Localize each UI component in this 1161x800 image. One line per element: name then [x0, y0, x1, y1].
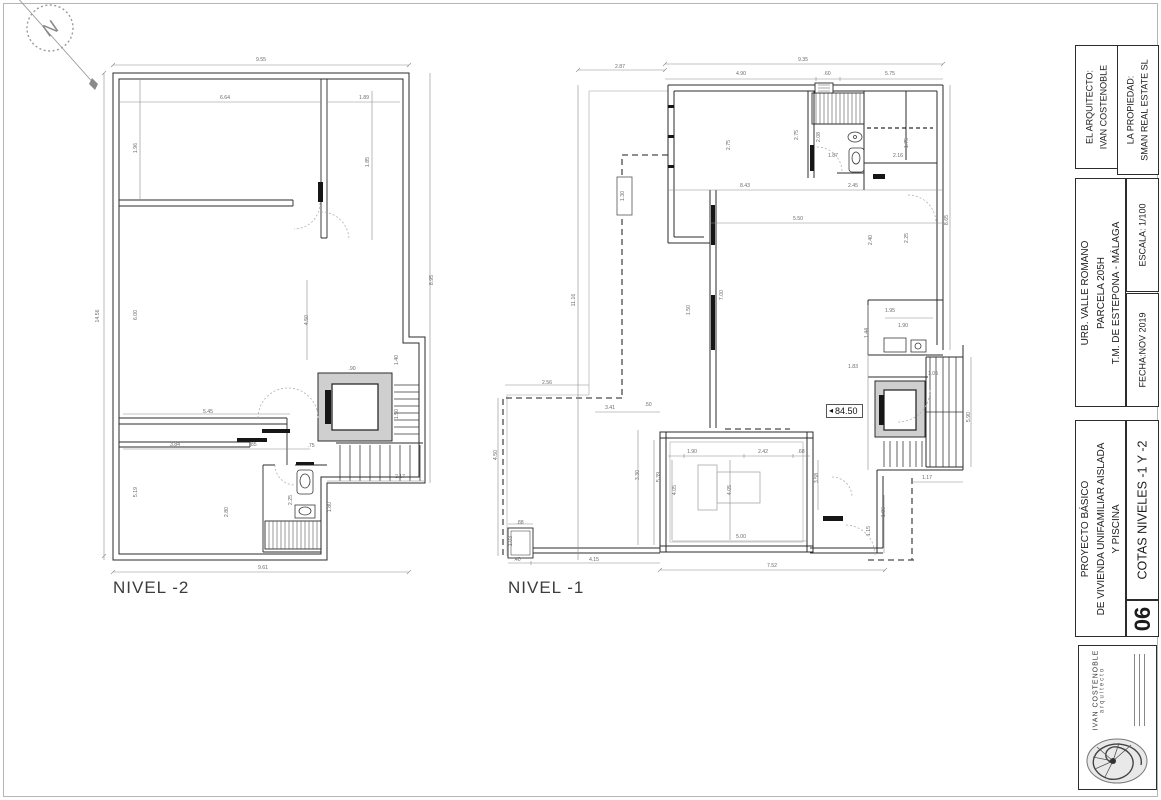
wc-fixtures: [848, 132, 864, 172]
location-line1: URB. VALLE ROMANO: [1077, 181, 1093, 405]
location-line2: PARCELA 205H: [1093, 181, 1109, 405]
scale-value: ESCALA: 1/100: [1136, 180, 1150, 290]
sheet-number-cell: 06: [1126, 600, 1159, 637]
compass-rose-icon: [16, 0, 98, 90]
svg-text:3.41: 3.41: [605, 405, 615, 411]
location-line3: T.M. DE ESTEPONA - MÁLAGA: [1108, 181, 1124, 405]
project-cell: PROYECTO BÁSICO DE VIVIENDA UNIFAMILIAR …: [1075, 420, 1126, 637]
stamp-contact-text: [1134, 654, 1135, 726]
svg-text:5.90: 5.90: [966, 412, 972, 422]
date-cell: FECHA:NOV 2019: [1126, 293, 1159, 407]
architect-cell: EL ARQUITECTO: IVAN COSTENOBLE: [1075, 45, 1118, 169]
title-block: EL ARQUITECTO: IVAN COSTENOBLE LA PROPIE…: [1074, 42, 1160, 795]
utility-fixtures: [884, 338, 926, 352]
svg-text:4.15: 4.15: [589, 557, 599, 563]
svg-text:2.87: 2.87: [615, 64, 625, 70]
project-line1: PROYECTO BÁSICO: [1077, 423, 1093, 635]
owner-label: LA PROPIEDAD:: [1125, 47, 1139, 173]
ramp-hatch: [812, 83, 864, 124]
stamp-name: IVAN COSTENOBLE: [1093, 647, 1100, 733]
svg-text:3.58: 3.58: [814, 473, 820, 483]
location-cell: URB. VALLE ROMANO PARCELA 205H T.M. DE E…: [1075, 178, 1126, 407]
svg-text:1.40: 1.40: [394, 355, 400, 365]
svg-text:4.05: 4.05: [727, 485, 733, 495]
svg-text:1.44: 1.44: [864, 328, 870, 338]
door-arcs: [258, 203, 349, 485]
svg-text:1.90: 1.90: [687, 449, 697, 455]
elevator-shaft: [875, 381, 925, 437]
svg-text:1.85: 1.85: [365, 157, 371, 167]
svg-text:2.56: 2.56: [542, 380, 552, 386]
nautilus-shell-logo: [1079, 735, 1154, 787]
terrace-slab-lines: [507, 91, 668, 556]
svg-text:1.86: 1.86: [881, 507, 887, 517]
svg-text:.90: .90: [348, 366, 355, 372]
svg-text:.85: .85: [249, 442, 256, 448]
svg-text:1.80: 1.80: [327, 502, 333, 512]
svg-text:4.05: 4.05: [672, 485, 678, 495]
svg-text:.60: .60: [823, 71, 830, 77]
sheet-number: 06: [1130, 602, 1156, 636]
svg-text:1.50: 1.50: [394, 409, 400, 419]
plan-nivel-1: [498, 62, 971, 572]
grille-hatch: [265, 521, 321, 549]
svg-text:5.00: 5.00: [736, 534, 746, 540]
svg-text:3.30: 3.30: [635, 470, 641, 480]
svg-text:4.50: 4.50: [493, 450, 499, 460]
svg-text:7.00: 7.00: [719, 290, 725, 300]
svg-text:.40: .40: [513, 557, 520, 563]
level-marker-value: 84.50: [835, 406, 858, 416]
architect-stamp-card: IVAN COSTENOBLE arquitecto: [1078, 645, 1157, 790]
svg-text:5.50: 5.50: [793, 216, 803, 222]
level-marker: ◂ 84.50: [826, 404, 863, 418]
sheet-title-cell: COTAS NIVELES -1 Y -2: [1126, 420, 1159, 600]
svg-text:5.45: 5.45: [203, 409, 213, 415]
plan-title-nivel-2: NIVEL -2: [113, 578, 189, 598]
dimension-lines: [498, 62, 971, 572]
svg-text:4.90: 4.90: [736, 71, 746, 77]
architect-name: IVAN COSTENOBLE: [1097, 47, 1111, 167]
svg-text:.68: .68: [797, 449, 804, 455]
svg-text:6.00: 6.00: [133, 310, 139, 320]
svg-text:9.61: 9.61: [258, 565, 268, 571]
architect-label: EL ARQUITECTO:: [1083, 47, 1097, 167]
sheet-title: COTAS NIVELES -1 Y -2: [1134, 423, 1152, 598]
svg-text:1.75: 1.75: [904, 138, 910, 148]
svg-text:2.80: 2.80: [224, 507, 230, 517]
svg-text:1.06: 1.06: [928, 371, 938, 377]
project-line3: Y PISCINA: [1108, 423, 1124, 635]
svg-text:5.19: 5.19: [133, 487, 139, 497]
floorplan-canvas: 9.556.641.8914.561.961.858.956.004.505.4…: [0, 0, 1161, 800]
level-flag-icon: ◂: [829, 407, 833, 415]
svg-text:2.42: 2.42: [758, 449, 768, 455]
dimension-lines: [102, 63, 430, 574]
stamp-contact-text: [1144, 654, 1145, 726]
svg-text:1.83: 1.83: [848, 364, 858, 370]
svg-text:5.39: 5.39: [656, 472, 662, 482]
stamp-contact-text: [1139, 654, 1140, 726]
owner-name: SMAN REAL ESTATE SL: [1138, 47, 1152, 173]
svg-text:1.17: 1.17: [922, 475, 932, 481]
svg-text:8.65: 8.65: [944, 215, 950, 225]
project-line2: DE VIVIENDA UNIFAMILIAR AISLADA: [1093, 423, 1109, 635]
svg-text:11.16: 11.16: [571, 294, 577, 307]
svg-text:1.87: 1.87: [828, 153, 838, 159]
svg-text:2.75: 2.75: [794, 130, 800, 140]
svg-text:.50: .50: [644, 402, 651, 408]
scale-cell: ESCALA: 1/100: [1126, 178, 1159, 292]
svg-text:2.16: 2.16: [893, 153, 903, 159]
svg-text:2.08: 2.08: [816, 132, 822, 142]
bathroom-fixtures: [295, 470, 315, 518]
owner-cell: LA PROPIEDAD: SMAN REAL ESTATE SL: [1117, 45, 1159, 175]
stamp-role: arquitecto: [1100, 647, 1106, 733]
svg-text:6.64: 6.64: [220, 95, 230, 101]
svg-text:4.50: 4.50: [304, 315, 310, 325]
svg-text:3.84: 3.84: [170, 442, 180, 448]
svg-text:.88: .88: [516, 520, 523, 526]
svg-text:5.75: 5.75: [885, 71, 895, 77]
svg-text:1.15: 1.15: [866, 526, 872, 536]
plan-title-nivel-1: NIVEL -1: [508, 578, 584, 598]
svg-text:2.40: 2.40: [868, 235, 874, 245]
plan-nivel-2: [102, 63, 430, 574]
svg-text:7.52: 7.52: [767, 563, 777, 569]
svg-text:1.50: 1.50: [686, 305, 692, 315]
svg-text:2.17: 2.17: [395, 474, 405, 480]
svg-text:2.45: 2.45: [848, 183, 858, 189]
svg-text:1.95: 1.95: [885, 308, 895, 314]
svg-text:.75: .75: [307, 443, 314, 449]
svg-text:2.75: 2.75: [726, 140, 732, 150]
svg-text:14.56: 14.56: [95, 309, 101, 322]
svg-text:1.30: 1.30: [620, 191, 626, 201]
window-glazing: [668, 105, 885, 521]
svg-text:8.43: 8.43: [740, 183, 750, 189]
drawing-sheet: 9.556.641.8914.561.961.858.956.004.505.4…: [0, 0, 1161, 800]
svg-text:1.03: 1.03: [508, 536, 514, 546]
svg-text:9.55: 9.55: [256, 57, 266, 63]
svg-text:2.25: 2.25: [288, 495, 294, 505]
svg-text:2.25: 2.25: [904, 233, 910, 243]
svg-text:1.89: 1.89: [359, 95, 369, 101]
door-leaves: [237, 182, 323, 465]
date-value: FECHA:NOV 2019: [1136, 295, 1150, 405]
svg-text:1.90: 1.90: [898, 323, 908, 329]
svg-text:8.95: 8.95: [429, 275, 435, 285]
svg-text:N: N: [39, 17, 62, 42]
svg-text:1.96: 1.96: [133, 143, 139, 153]
svg-text:9.35: 9.35: [798, 57, 808, 63]
elevator-shaft: [318, 373, 392, 441]
